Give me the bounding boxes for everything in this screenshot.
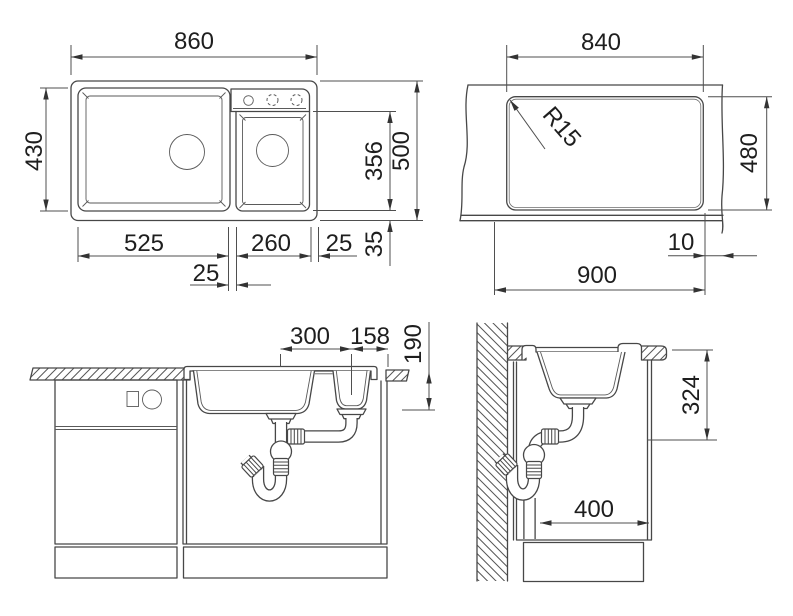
- dim-bowl-depth: 190: [400, 322, 435, 410]
- dim-label-drain-to-edge: 158: [350, 323, 390, 350]
- dim-overall-width: 860: [71, 28, 317, 75]
- dim-second-bowl-length: 356: [313, 112, 396, 211]
- main-drain-icon: [170, 135, 205, 170]
- top-view: 860 430 356 500 35: [21, 28, 423, 291]
- dim-cutout-width: 840: [507, 29, 704, 92]
- faucet-deck: [231, 89, 310, 112]
- dishwasher-cabinet: [55, 380, 177, 578]
- dim-label-main-bowl-width: 525: [124, 230, 164, 257]
- dim-label-edge-offset: 10: [668, 229, 695, 256]
- dim-label-right-rim: 25: [326, 230, 353, 257]
- side-section-view: 324 400: [477, 323, 717, 582]
- dishwasher-plinth: [55, 547, 177, 578]
- pipe-nut-icon: [527, 462, 542, 479]
- dim-bottom-widths: 525 260 25 25: [78, 227, 357, 291]
- faucet-hole-dashed-2: [291, 95, 302, 106]
- second-drain-icon: [257, 135, 289, 167]
- dim-edge-offset: 10: [668, 213, 757, 295]
- sink-cabinet-side-plinth: [524, 543, 644, 582]
- worktop-side-right: [642, 346, 667, 360]
- dim-corner-radius: R15: [508, 98, 586, 152]
- sink-side-section: [522, 344, 642, 399]
- dim-label-front-rim: 35: [361, 231, 388, 258]
- pipe-nut-icon: [274, 459, 289, 476]
- dim-front-rim: 35: [361, 221, 393, 267]
- wall-hatch: [477, 323, 508, 581]
- dim-label-second-bowl-length: 356: [361, 141, 388, 181]
- second-bowl: [236, 112, 310, 212]
- dim-drain-clearance: 400: [540, 496, 649, 526]
- dim-label-install-height: 324: [678, 375, 705, 415]
- dim-label-overall-width: 860: [174, 28, 214, 55]
- sink-front-section: [184, 367, 377, 414]
- dim-label-drain-clearance: 400: [574, 496, 614, 523]
- technical-drawing-page: 860 430 356 500 35: [0, 0, 793, 616]
- cutout-view: R15 840 480 10 900: [460, 29, 772, 295]
- pipe-nut-icon: [542, 429, 559, 444]
- front-section-view: 300 158 190: [30, 322, 435, 578]
- worktop-hatch-left: [30, 368, 190, 380]
- sink-cabinet-plinth: [184, 547, 388, 578]
- dim-label-bowl-depth: 190: [400, 324, 427, 364]
- worktop-outline: [460, 85, 723, 233]
- dim-label-cutout-depth: 480: [736, 133, 763, 173]
- drain-plumbing-front: [241, 409, 366, 496]
- dim-main-bowl-depth: 430: [21, 88, 68, 211]
- control-knob-icon: [143, 390, 162, 409]
- control-square-icon: [127, 392, 139, 407]
- sink-outline: [71, 81, 317, 221]
- worktop-hatch-right: [386, 370, 409, 381]
- dim-label-min-cabinet-width: 900: [577, 262, 617, 289]
- faucet-hole-dashed-1: [267, 95, 278, 106]
- dim-label-second-bowl-width: 260: [251, 230, 291, 257]
- dim-install-height: 324: [647, 350, 717, 440]
- dim-label-drain-spacing: 300: [290, 323, 330, 350]
- pipe-nut-icon: [288, 429, 305, 444]
- cutout-rect: [507, 97, 704, 210]
- dim-label-overall-depth: 500: [388, 131, 415, 171]
- dim-label-cutout-width: 840: [581, 29, 621, 56]
- dim-label-corner-radius: R15: [537, 102, 586, 153]
- dim-label-divider-width: 25: [193, 260, 220, 287]
- dim-cutout-depth: 480: [708, 97, 772, 210]
- dim-label-main-bowl-depth: 430: [21, 131, 48, 171]
- faucet-hole-solid: [244, 96, 254, 106]
- technical-drawing: 860 430 356 500 35: [0, 0, 793, 616]
- main-bowl: [78, 88, 230, 211]
